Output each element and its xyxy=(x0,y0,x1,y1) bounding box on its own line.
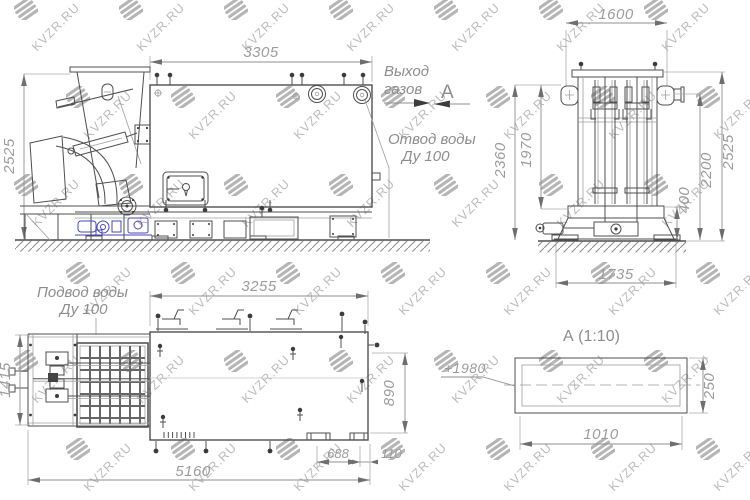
drawing-svg: 3305 2525 xyxy=(0,0,750,500)
end-machine-body xyxy=(561,62,684,206)
section-a-annotation: А xyxy=(434,82,470,108)
gas-outlet-line2: газов xyxy=(384,81,422,98)
section-a-label: А xyxy=(441,82,454,103)
gas-flow-arrow-icon xyxy=(414,99,430,107)
gas-outlet-line1: Выход xyxy=(384,63,429,80)
bottom-bolts xyxy=(154,441,273,453)
dim-2360-label: 2360 xyxy=(492,142,509,179)
pump-unit xyxy=(75,218,152,235)
dim-2200-label: 2200 xyxy=(698,152,715,189)
dimension-1415: 1415 xyxy=(0,335,30,425)
water-drain-line1: Отвод воды xyxy=(388,131,476,148)
ground-hatch-side xyxy=(15,240,430,252)
dim-2525-left-label: 2525 xyxy=(1,138,18,175)
side-fitting xyxy=(372,173,380,180)
side-view: 3305 2525 xyxy=(1,44,476,252)
dimension-250: 250 xyxy=(689,358,718,413)
loading-hopper xyxy=(70,67,150,198)
dimension-5160: 5160 xyxy=(28,430,370,485)
grate-grid xyxy=(77,343,148,427)
dimension-1600: 1600 xyxy=(566,6,667,86)
water-supply-line1: Подвод воды xyxy=(37,284,128,301)
body-valves xyxy=(157,335,364,428)
drain-pipe xyxy=(365,100,389,238)
water-supply-line2: Ду 100 xyxy=(58,301,108,318)
top-bolts xyxy=(156,312,368,334)
dim-110-label: 110 xyxy=(381,446,402,461)
dim-5160-label: 5160 xyxy=(175,463,211,480)
top-brackets xyxy=(156,310,302,329)
dim-1010-label: 1010 xyxy=(583,426,619,443)
end-view: 1600 xyxy=(492,6,737,288)
dim-400-label: 400 xyxy=(676,187,693,214)
gas-outlet-annotation: Выход газов xyxy=(384,63,430,107)
tank-flange-ports xyxy=(309,86,371,104)
dim-1600-label: 1600 xyxy=(598,6,634,23)
detail-view-a: А (1:10) +1980 1010 250 xyxy=(441,328,718,450)
dimension-890: 890 xyxy=(370,353,408,433)
water-drain-line2: Ду 100 xyxy=(400,148,450,165)
dimension-400: 400 xyxy=(664,187,693,240)
end-base xyxy=(536,206,680,240)
dim-1970-label: 1970 xyxy=(518,132,535,168)
plan-body xyxy=(150,310,379,453)
elevation-mark: +1980 xyxy=(441,360,515,386)
ground-hatch-end xyxy=(538,241,686,253)
mounting-feet xyxy=(307,433,368,440)
tank-top-bolts xyxy=(155,73,366,85)
dim-1415-label: 1415 xyxy=(0,362,14,398)
elevation-label: +1980 xyxy=(444,360,486,376)
plan-view: Подвод воды Ду 100 3255 xyxy=(0,278,408,485)
base-frame xyxy=(20,197,372,240)
dimension-2200: 2200 xyxy=(674,94,715,240)
dimension-3305: 3305 xyxy=(150,44,372,82)
tank-bottom-fittings xyxy=(164,200,273,212)
dim-1735-label: 1735 xyxy=(598,266,634,283)
dimension-3255: 3255 xyxy=(150,278,368,326)
dim-890-label: 890 xyxy=(381,380,398,407)
dimension-1010: 1010 xyxy=(520,416,682,450)
dim-688-label: 688 xyxy=(327,446,349,461)
dim-3255-label: 3255 xyxy=(241,278,277,295)
dim-250-label: 250 xyxy=(701,373,718,401)
dimension-1970: 1970 xyxy=(518,85,568,209)
hydraulic-cylinder xyxy=(56,89,150,156)
skip-bucket xyxy=(30,136,131,206)
drive-mechanism xyxy=(9,334,150,426)
water-supply-annotation: Подвод воды Ду 100 xyxy=(37,284,128,334)
water-drain-annotation: Отвод воды Ду 100 xyxy=(388,131,476,165)
inspection-door xyxy=(163,172,208,205)
dim-2525-right-label: 2525 xyxy=(720,134,737,171)
guide-columns xyxy=(591,77,651,222)
dim-3305-label: 3305 xyxy=(243,44,279,61)
tank-body xyxy=(118,73,389,238)
technical-drawing-canvas: KVZR.RU KVZR.RU KVZR.RU xyxy=(0,0,750,500)
detail-a-title: А (1:10) xyxy=(563,328,620,345)
